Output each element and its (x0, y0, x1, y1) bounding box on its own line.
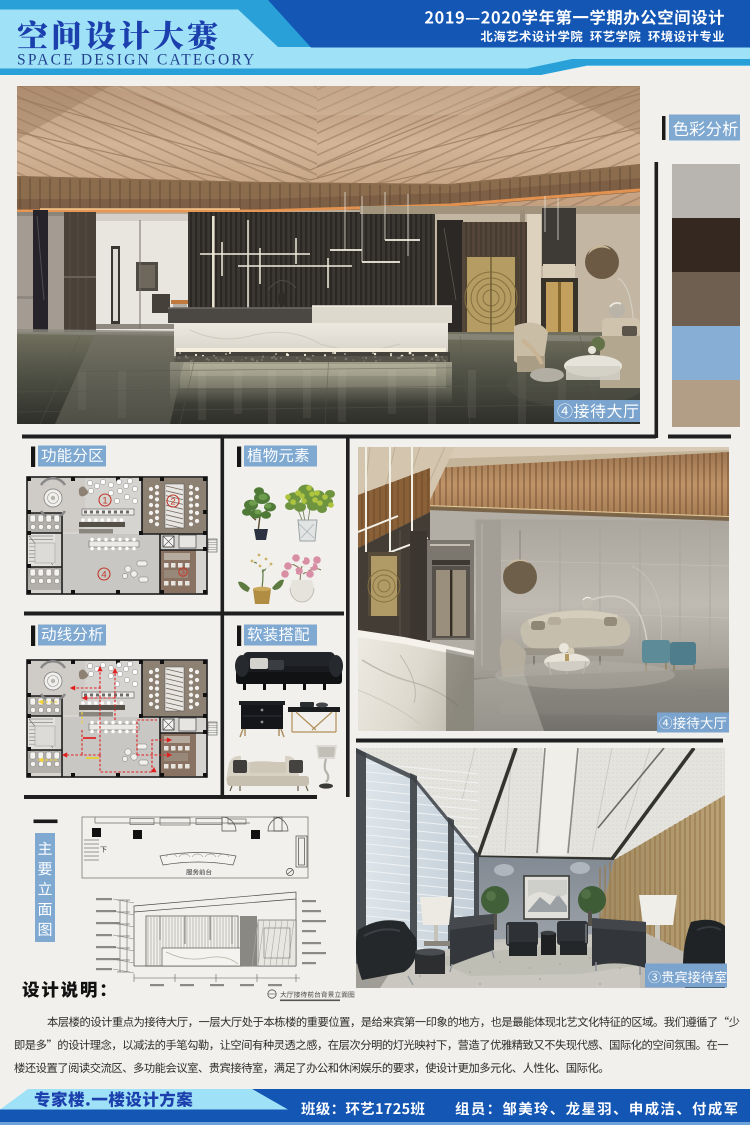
svg-text:4: 4 (101, 569, 106, 580)
svg-text:3: 3 (181, 570, 185, 577)
svg-text:1: 1 (102, 495, 107, 506)
svg-text:2: 2 (170, 496, 175, 507)
svg-text:SPACE DESIGN CATEGORY: SPACE DESIGN CATEGORY (17, 52, 256, 69)
